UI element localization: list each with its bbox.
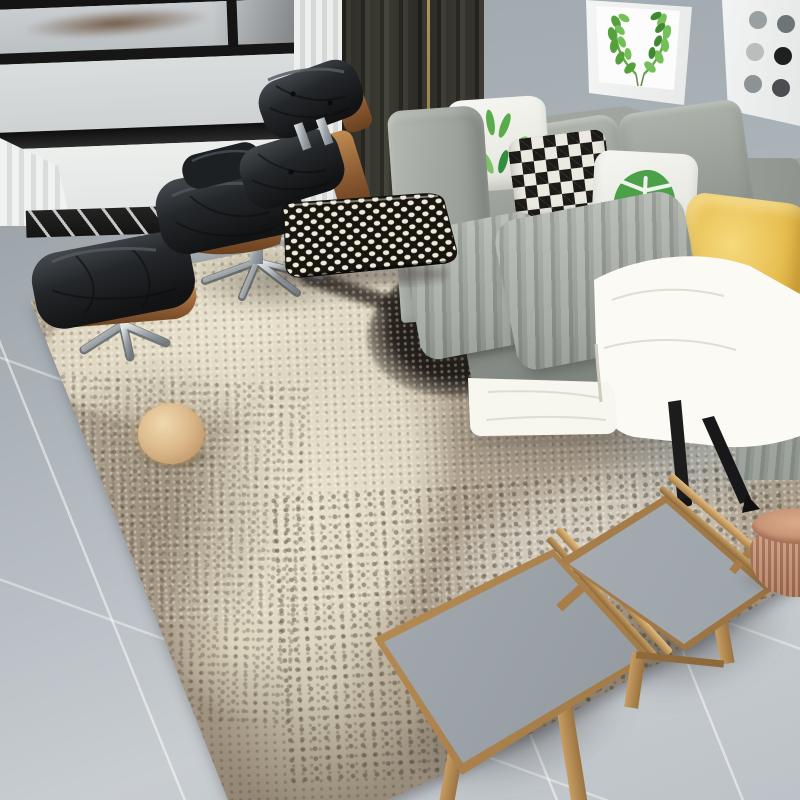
stool-right xyxy=(0,0,800,800)
terracotta-pouf xyxy=(750,508,800,598)
living-room-photo xyxy=(0,0,800,800)
stool-wood-frame xyxy=(0,0,800,800)
stool-concrete-top xyxy=(0,0,800,800)
stool-leg xyxy=(624,651,646,708)
stool-stretcher-bar xyxy=(636,651,724,667)
